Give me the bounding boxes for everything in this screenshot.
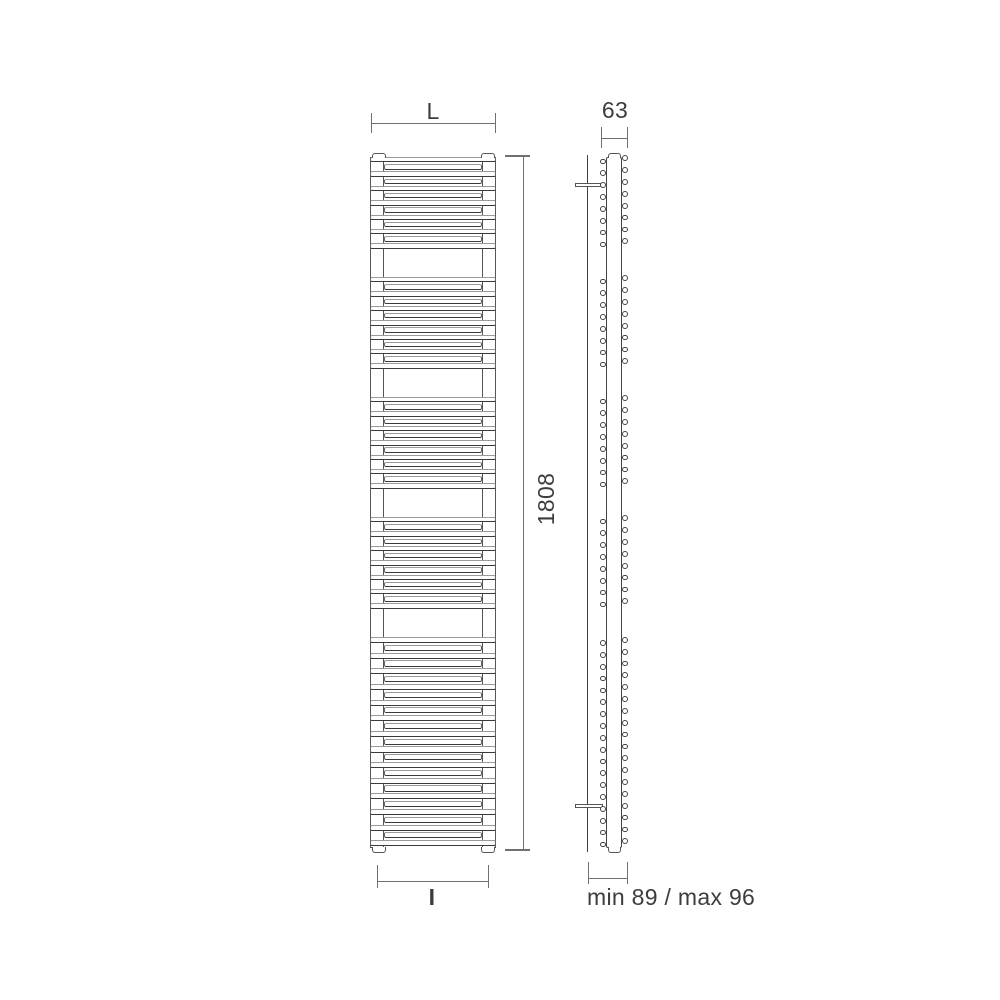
- tube-end-circle: [600, 446, 606, 452]
- tube-end-circle: [600, 194, 606, 200]
- radiator-tube: [384, 801, 482, 807]
- radiator-tube: [384, 462, 482, 467]
- radiator-tube: [370, 825, 496, 831]
- tube-end-circle: [622, 275, 628, 281]
- dim-depth-line: [601, 138, 628, 139]
- wall-bracket-top: [575, 183, 603, 188]
- dim-height-line: [523, 156, 524, 850]
- radiator-tube: [370, 469, 496, 474]
- radiator-tube: [384, 539, 482, 544]
- tube-end-circle: [600, 218, 606, 224]
- radiator-tube: [370, 517, 496, 522]
- tube-end-circle: [600, 458, 606, 464]
- radiator-tube: [370, 306, 496, 311]
- tube-end-circle: [622, 696, 628, 702]
- tube-end-circle: [622, 191, 628, 197]
- dim-interaxis-line: [378, 881, 489, 882]
- tube-end-circle: [622, 791, 628, 797]
- tube-end-circle: [600, 314, 606, 320]
- tube-end-circle: [622, 587, 628, 593]
- tube-end-circle: [622, 779, 628, 785]
- radiator-tube: [384, 692, 482, 698]
- radiator-tube: [370, 291, 496, 296]
- side-top-cap: [608, 153, 621, 159]
- tube-end-circle: [622, 238, 628, 244]
- radiator-tube: [370, 186, 496, 191]
- tube-end-circle: [622, 179, 628, 185]
- wall-bracket-bottom: [575, 804, 603, 809]
- tube-end-circle: [622, 815, 628, 821]
- radiator-tube: [370, 426, 496, 431]
- technical-drawing-canvas: L 1808 I 63 min 89 / max 96: [0, 0, 1000, 1000]
- tube-end-circle: [600, 326, 606, 332]
- radiator-tube: [384, 707, 482, 713]
- radiator-tube: [384, 313, 482, 318]
- tube-end-circle: [622, 551, 628, 557]
- left-collector: [370, 157, 384, 848]
- tube-end-circle: [622, 358, 628, 364]
- tube-end-circle: [622, 661, 628, 667]
- radiator-tube: [370, 809, 496, 815]
- tube-end-circle: [622, 803, 628, 809]
- radiator-tube: [370, 762, 496, 768]
- radiator-tube: [384, 553, 482, 558]
- tube-end-circle: [622, 755, 628, 761]
- radiator-tube: [370, 455, 496, 460]
- radiator-tube: [370, 200, 496, 205]
- dim-width-label: L: [421, 98, 445, 125]
- tube-end-circle: [622, 575, 628, 581]
- radiator-tube: [370, 397, 496, 402]
- radiator-tube: [370, 668, 496, 674]
- dim-depth-label: 63: [595, 97, 635, 124]
- radiator-tube: [384, 476, 482, 481]
- tube-end-circle: [600, 818, 606, 824]
- tube-end-circle: [600, 747, 606, 753]
- side-bottom-foot: [608, 847, 621, 853]
- radiator-tube: [384, 582, 482, 587]
- tube-end-circle: [622, 539, 628, 545]
- radiator-tube: [370, 531, 496, 536]
- radiator-tube: [384, 832, 482, 838]
- tube-end-circle: [622, 431, 628, 437]
- radiator-tube: [384, 739, 482, 745]
- radiator-tube: [370, 637, 496, 643]
- tube-end-circle: [622, 708, 628, 714]
- radiator-tube: [384, 660, 482, 666]
- radiator-tube: [370, 440, 496, 445]
- radiator-tube: [384, 433, 482, 438]
- tube-end-circle: [622, 732, 628, 738]
- tube-end-circle: [622, 335, 628, 341]
- radiator-tube: [370, 575, 496, 580]
- tube-end-circle: [600, 723, 606, 729]
- radiator-tube: [384, 207, 482, 212]
- radiator-tube: [370, 731, 496, 737]
- tube-end-circle: [600, 434, 606, 440]
- tube-end-circle: [622, 563, 628, 569]
- dim-interaxis-label: I: [424, 884, 440, 911]
- tube-end-circle: [600, 640, 606, 646]
- radiator-tube: [370, 215, 496, 220]
- radiator-tube: [370, 793, 496, 799]
- radiator-tube: [384, 179, 482, 184]
- dim-interaxis-tick-right: [488, 865, 489, 888]
- radiator-tube: [384, 567, 482, 572]
- side-collector: [606, 157, 622, 848]
- tube-end-circle: [622, 215, 628, 221]
- tube-end-circle: [622, 395, 628, 401]
- dim-wall-tick-left: [588, 862, 589, 884]
- tube-end-circle: [622, 649, 628, 655]
- tube-end-circle: [622, 767, 628, 773]
- radiator-tube: [384, 404, 482, 409]
- radiator-tube: [384, 327, 482, 332]
- dim-wall-label: min 89 / max 96: [587, 884, 755, 911]
- radiator-tube: [370, 277, 496, 282]
- radiator-tube: [370, 746, 496, 752]
- tube-end-circle: [622, 720, 628, 726]
- tube-end-circle: [600, 206, 606, 212]
- radiator-tube: [370, 653, 496, 659]
- radiator-tube: [370, 700, 496, 706]
- radiator-tube: [384, 222, 482, 227]
- tube-end-circle: [622, 299, 628, 305]
- radiator-tube: [384, 342, 482, 347]
- tube-end-circle: [600, 794, 606, 800]
- radiator-tube: [370, 171, 496, 176]
- top-cap-right: [481, 153, 495, 159]
- dim-interaxis-tick-left: [377, 865, 378, 888]
- tube-end-circle: [622, 407, 628, 413]
- radiator-tube: [384, 770, 482, 776]
- top-cap-left: [372, 153, 386, 159]
- tube-end-circle: [622, 287, 628, 293]
- tube-end-circle: [622, 227, 628, 233]
- radiator-tube: [370, 411, 496, 416]
- radiator-tube: [384, 419, 482, 424]
- radiator-tube: [384, 356, 482, 361]
- tube-end-circle: [600, 664, 606, 670]
- radiator-tube: [384, 817, 482, 823]
- radiator-tube: [384, 754, 482, 760]
- radiator-tube: [370, 589, 496, 594]
- radiator-tube: [370, 546, 496, 551]
- radiator-tube: [370, 715, 496, 721]
- tube-end-circle: [622, 838, 628, 844]
- radiator-tube: [370, 157, 496, 162]
- tube-end-circle: [622, 478, 628, 484]
- dim-wall-tick-right: [627, 862, 628, 884]
- tube-end-circle: [622, 515, 628, 521]
- tube-end-circle: [622, 467, 628, 473]
- radiator-tube: [384, 596, 482, 601]
- radiator-tube: [384, 723, 482, 729]
- tube-end-circle: [622, 311, 628, 317]
- radiator-tube: [384, 164, 482, 169]
- wall-line: [587, 155, 589, 852]
- tube-end-circle: [622, 827, 628, 833]
- radiator-tube: [384, 785, 482, 791]
- tube-end-circle: [622, 167, 628, 173]
- tube-end-circle: [622, 443, 628, 449]
- tube-end-circle: [600, 806, 606, 812]
- radiator-tube: [384, 284, 482, 289]
- tube-end-circle: [622, 598, 628, 604]
- tube-end-circle: [600, 338, 606, 344]
- radiator-tube: [370, 560, 496, 565]
- tube-end-circle: [600, 578, 606, 584]
- radiator-tube: [370, 840, 496, 846]
- radiator-tube: [370, 229, 496, 234]
- tube-end-circle: [600, 566, 606, 572]
- radiator-tube: [370, 603, 496, 608]
- tube-end-circle: [600, 652, 606, 658]
- radiator-tube: [384, 645, 482, 651]
- tube-end-circle: [622, 155, 628, 161]
- tube-end-circle: [622, 744, 628, 750]
- dim-height-label: 1808: [534, 468, 558, 530]
- radiator-tube: [384, 193, 482, 198]
- right-collector: [482, 157, 496, 848]
- tube-end-circle: [622, 347, 628, 353]
- dim-height-tick-top: [505, 155, 530, 156]
- dim-height-tick-bottom: [505, 849, 530, 850]
- radiator-tube: [370, 349, 496, 354]
- bottom-foot-right: [481, 847, 495, 853]
- radiator-tube: [370, 363, 496, 368]
- tube-end-circle: [622, 455, 628, 461]
- tube-end-circle: [600, 554, 606, 560]
- tube-end-circle: [622, 419, 628, 425]
- radiator-tube: [370, 778, 496, 784]
- radiator-tube: [384, 524, 482, 529]
- radiator-tube: [370, 684, 496, 690]
- radiator-tube: [370, 320, 496, 325]
- radiator-tube: [370, 243, 496, 248]
- tube-end-circle: [622, 637, 628, 643]
- radiator-tube: [384, 299, 482, 304]
- radiator-tube: [384, 676, 482, 682]
- radiator-tube: [384, 236, 482, 241]
- tube-end-circle: [600, 735, 606, 741]
- tube-end-circle: [622, 203, 628, 209]
- dim-wall-line: [588, 878, 627, 879]
- radiator-tube: [384, 447, 482, 452]
- radiator-tube: [370, 335, 496, 340]
- bottom-foot-left: [372, 847, 386, 853]
- tube-end-circle: [622, 527, 628, 533]
- tube-end-circle: [622, 323, 628, 329]
- tube-end-circle: [622, 672, 628, 678]
- radiator-tube: [370, 483, 496, 488]
- tube-end-circle: [622, 684, 628, 690]
